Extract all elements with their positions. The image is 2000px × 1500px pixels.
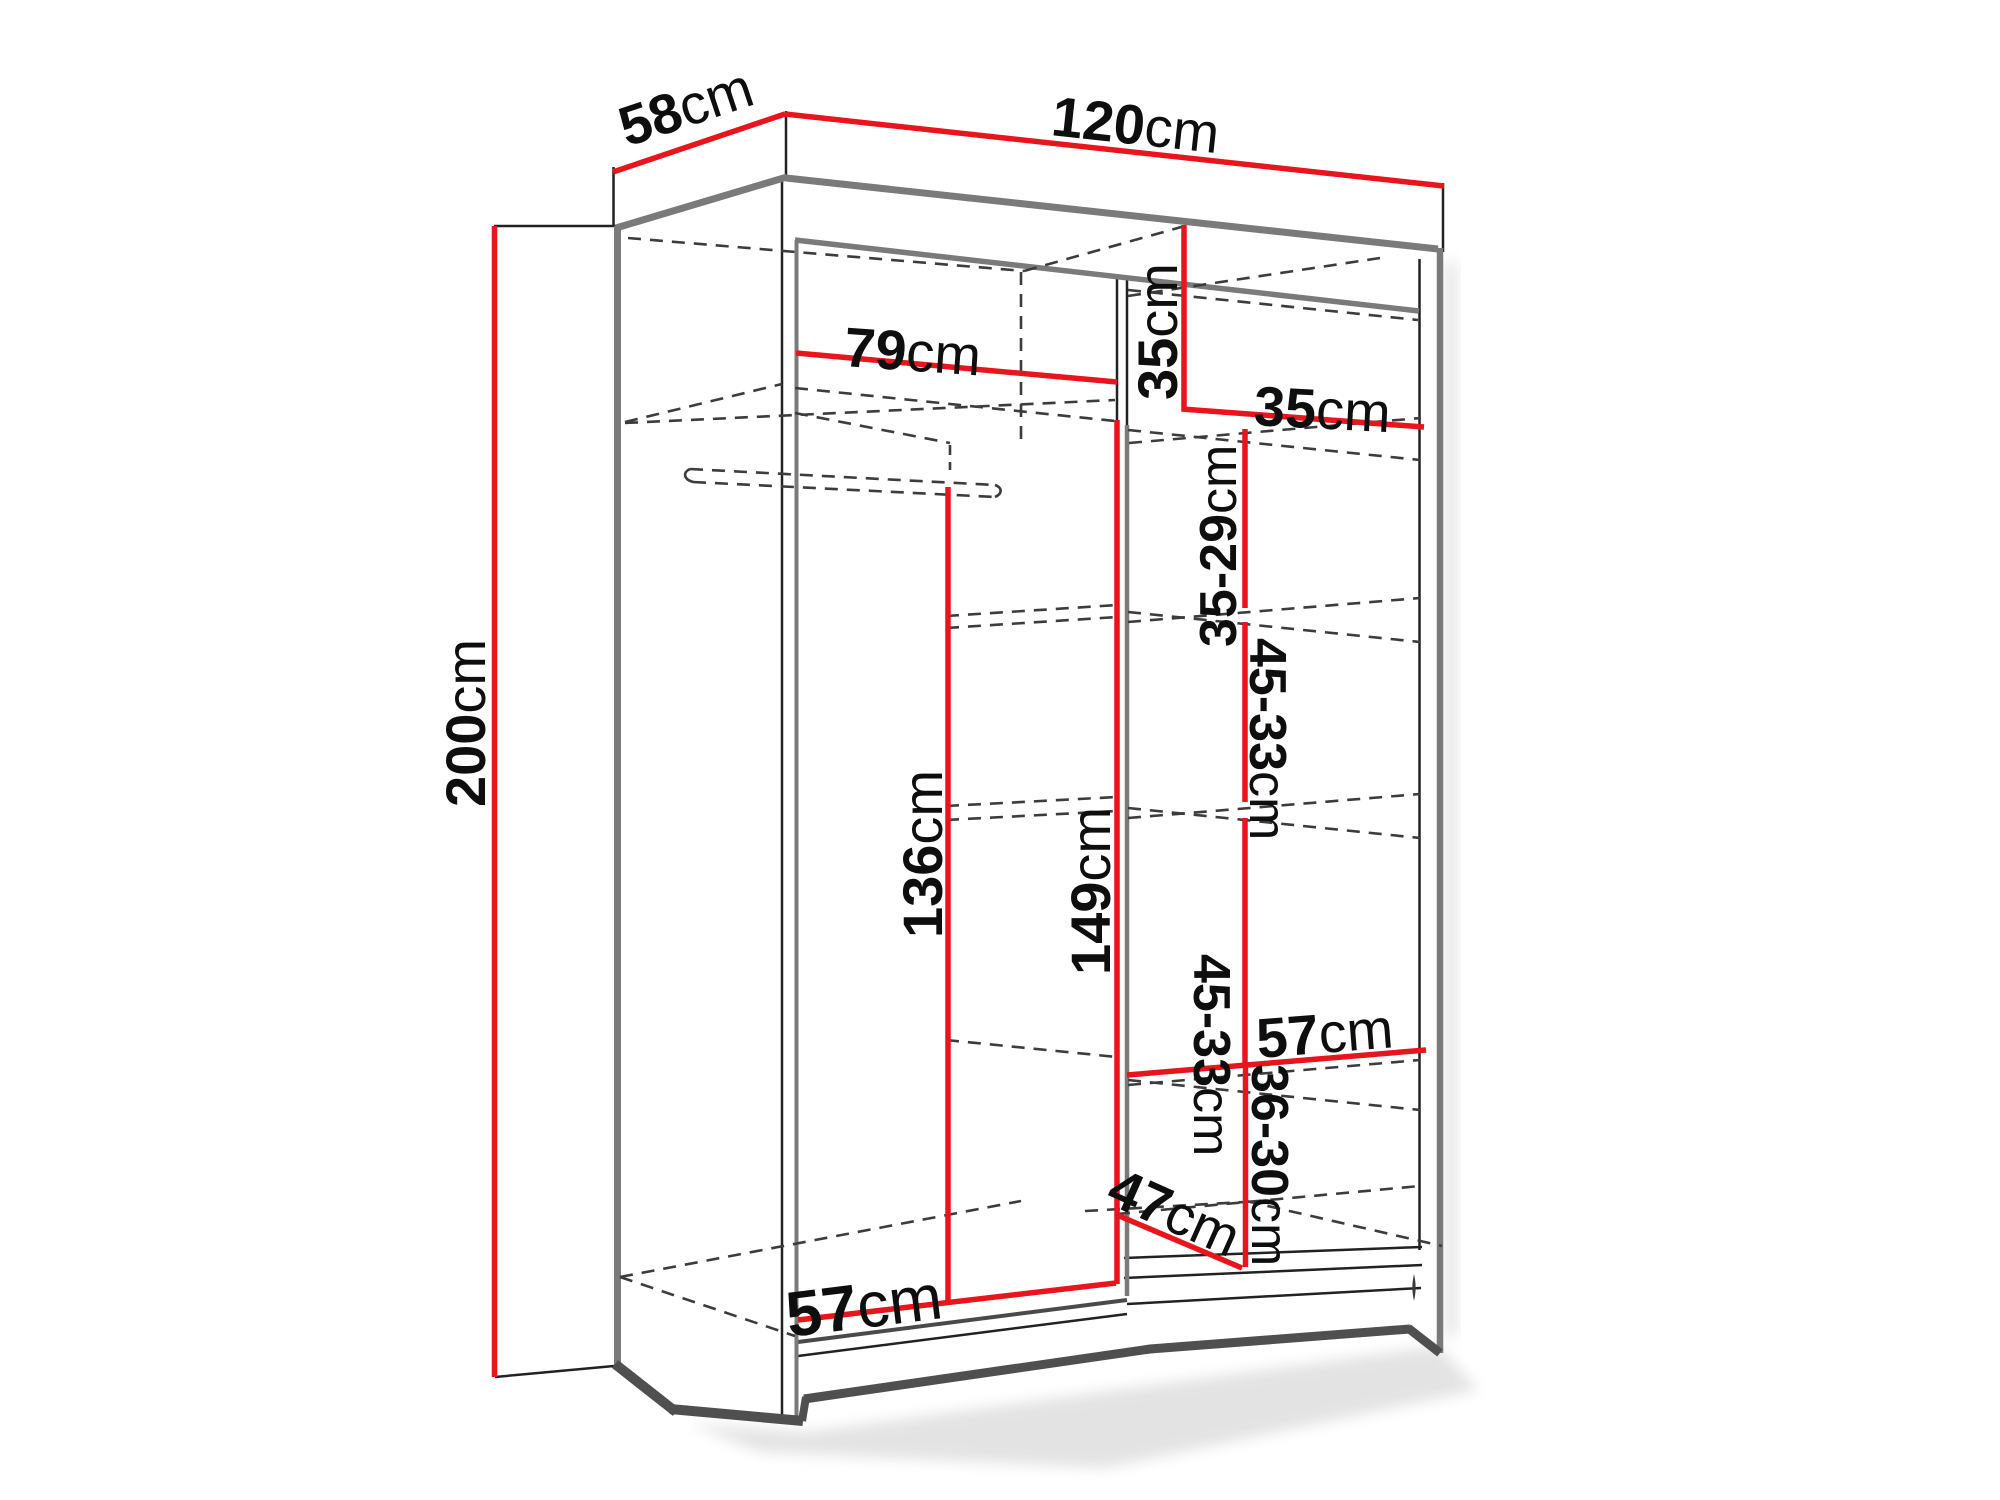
svg-text:136cm: 136cm bbox=[891, 770, 954, 938]
svg-text:79cm: 79cm bbox=[842, 315, 983, 387]
svg-text:35cm: 35cm bbox=[1252, 374, 1392, 444]
svg-text:36-30cm: 36-30cm bbox=[1240, 1064, 1298, 1266]
svg-text:35-29cm: 35-29cm bbox=[1190, 445, 1248, 647]
svg-text:149cm: 149cm bbox=[1059, 807, 1122, 975]
svg-text:35cm: 35cm bbox=[1126, 263, 1189, 400]
svg-text:45-33cm: 45-33cm bbox=[1238, 638, 1296, 840]
svg-text:57cm: 57cm bbox=[1254, 996, 1395, 1070]
svg-text:200cm: 200cm bbox=[434, 639, 497, 807]
svg-text:45-33cm: 45-33cm bbox=[1182, 954, 1240, 1156]
